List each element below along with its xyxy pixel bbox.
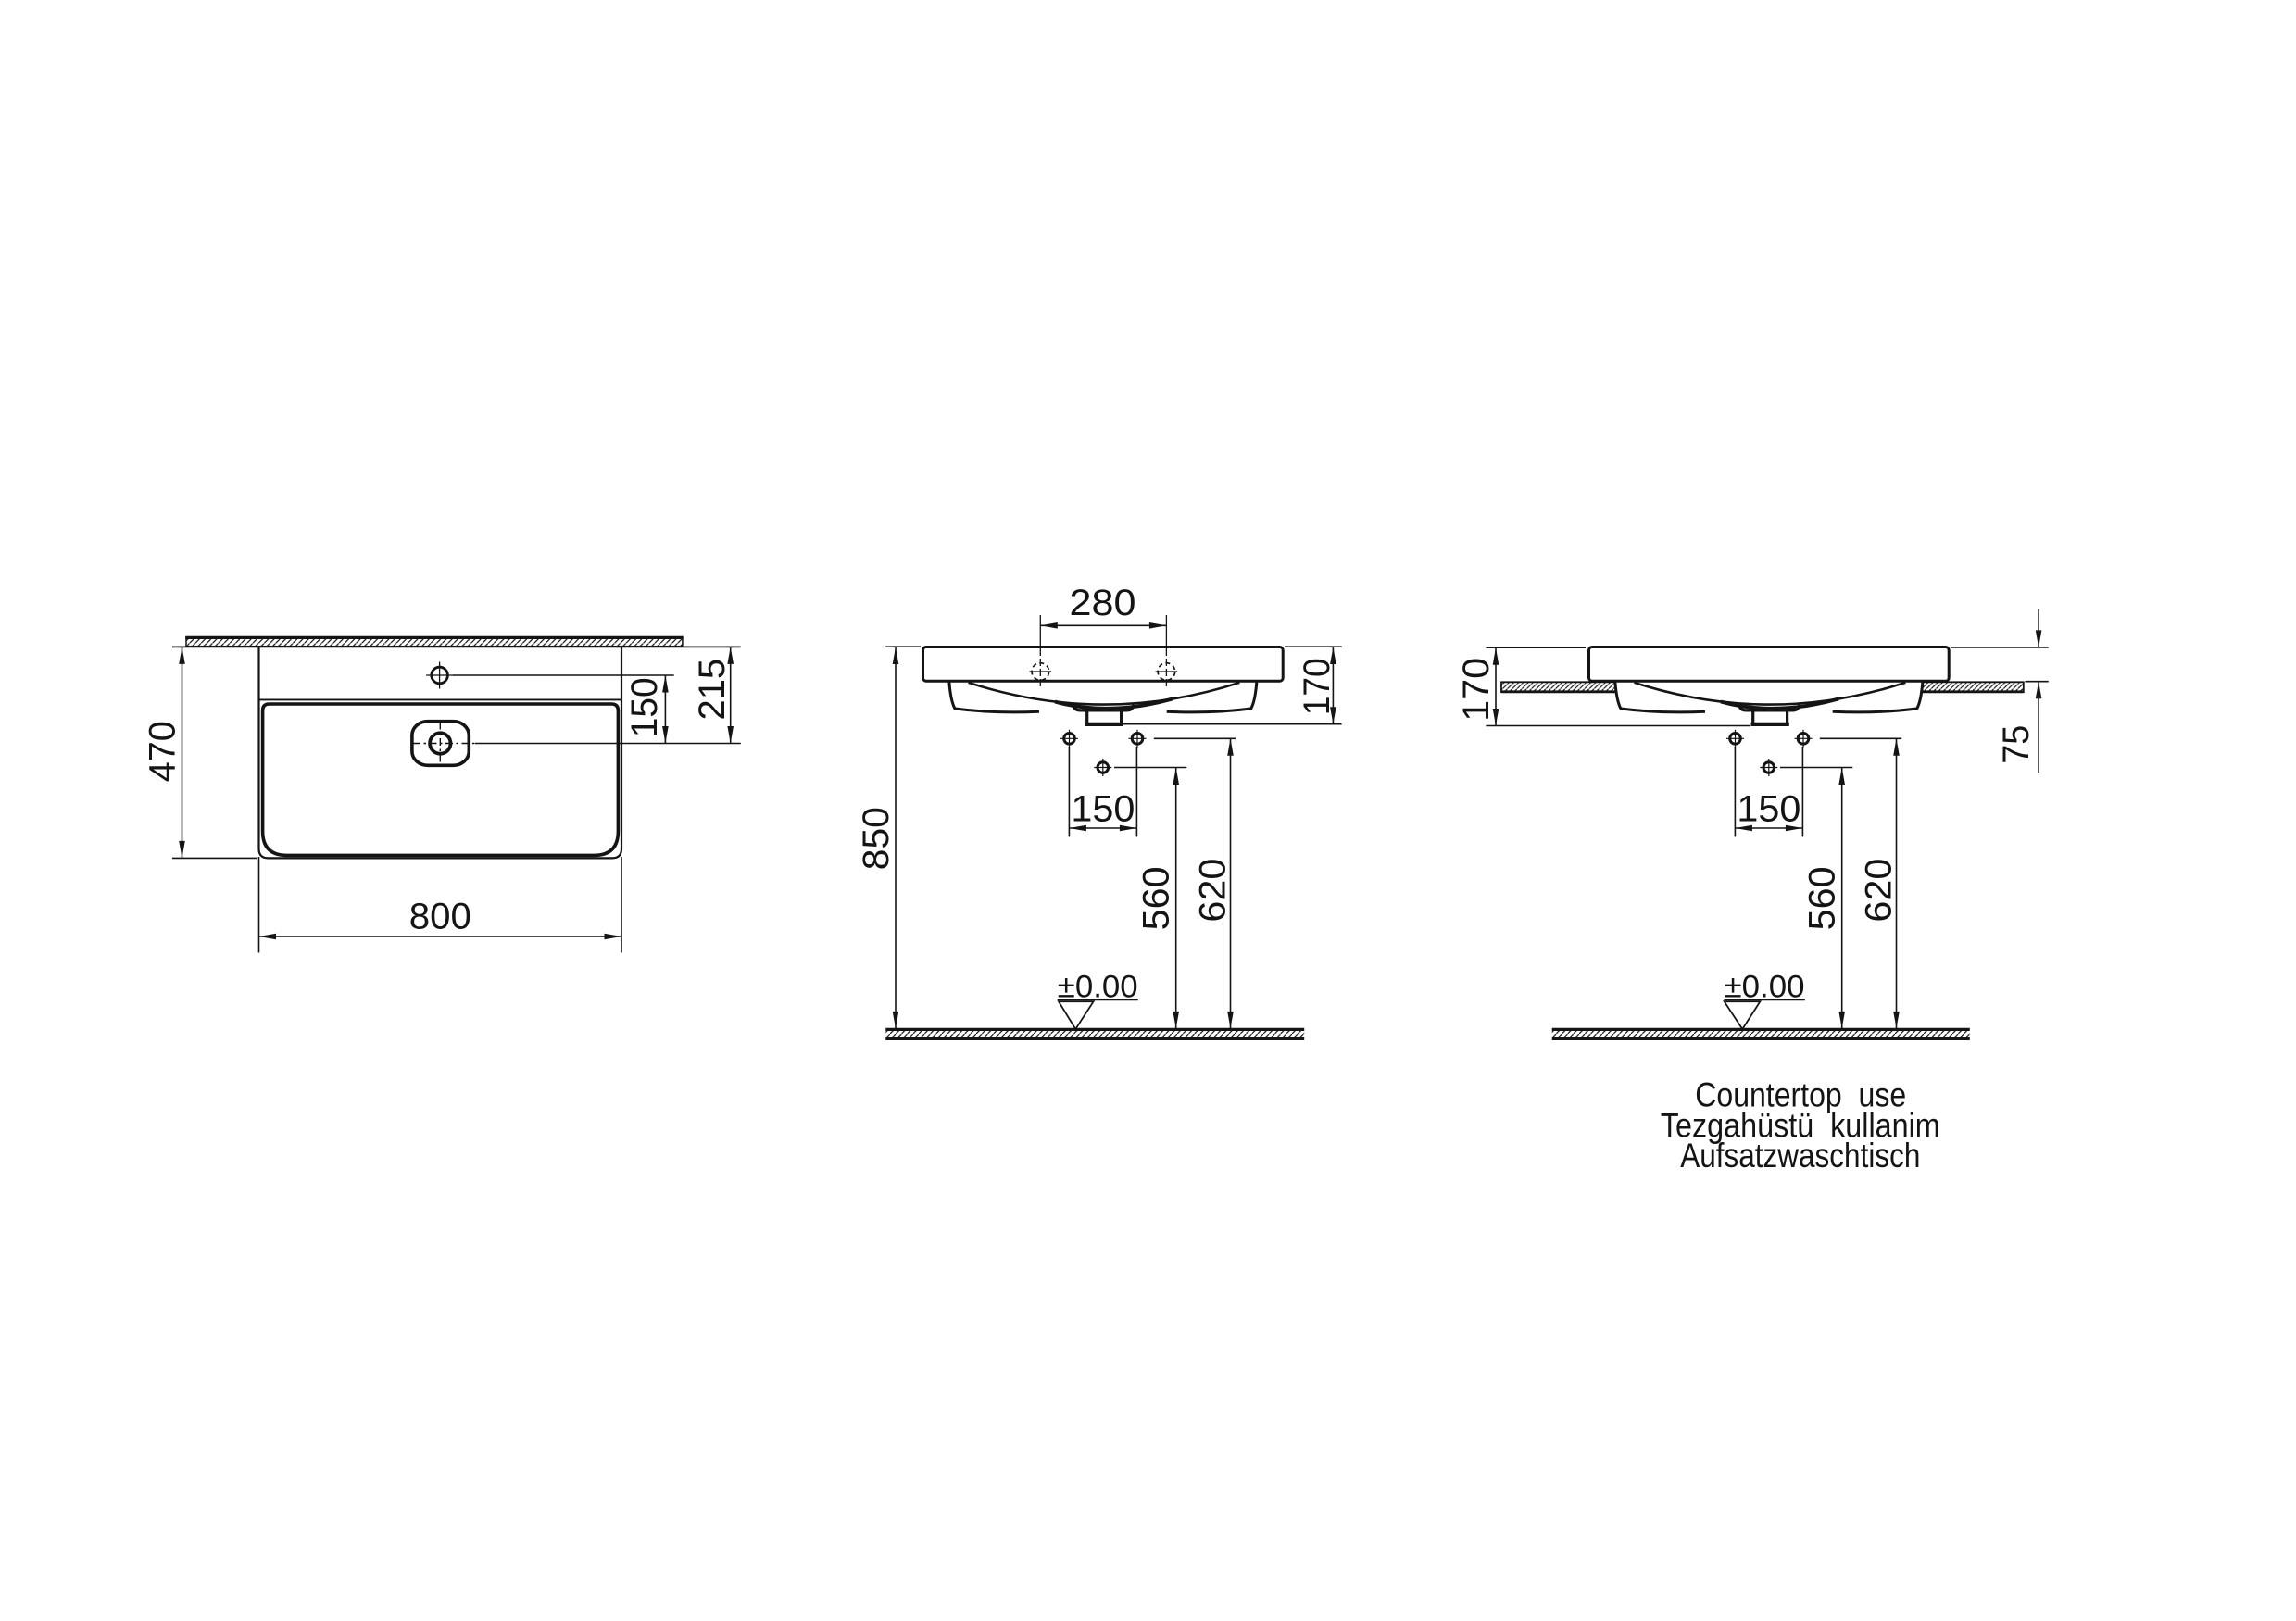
svg-text:170: 170: [1456, 658, 1497, 722]
svg-text:620: 620: [1192, 859, 1233, 923]
svg-text:850: 850: [856, 807, 897, 870]
svg-text:470: 470: [142, 721, 182, 782]
svg-text:150: 150: [1737, 788, 1800, 829]
svg-text:170: 170: [1297, 658, 1337, 715]
svg-text:150: 150: [624, 677, 665, 737]
svg-text:560: 560: [1136, 866, 1177, 930]
svg-text:150: 150: [1071, 788, 1135, 829]
svg-text:800: 800: [409, 897, 471, 937]
svg-text:Aufsatzwaschtisch: Aufsatzwaschtisch: [1680, 1137, 1920, 1175]
svg-text:560: 560: [1802, 866, 1843, 930]
svg-text:280: 280: [1070, 583, 1136, 623]
svg-text:215: 215: [692, 659, 733, 721]
svg-text:75: 75: [1996, 725, 2037, 764]
svg-text:620: 620: [1858, 859, 1899, 923]
